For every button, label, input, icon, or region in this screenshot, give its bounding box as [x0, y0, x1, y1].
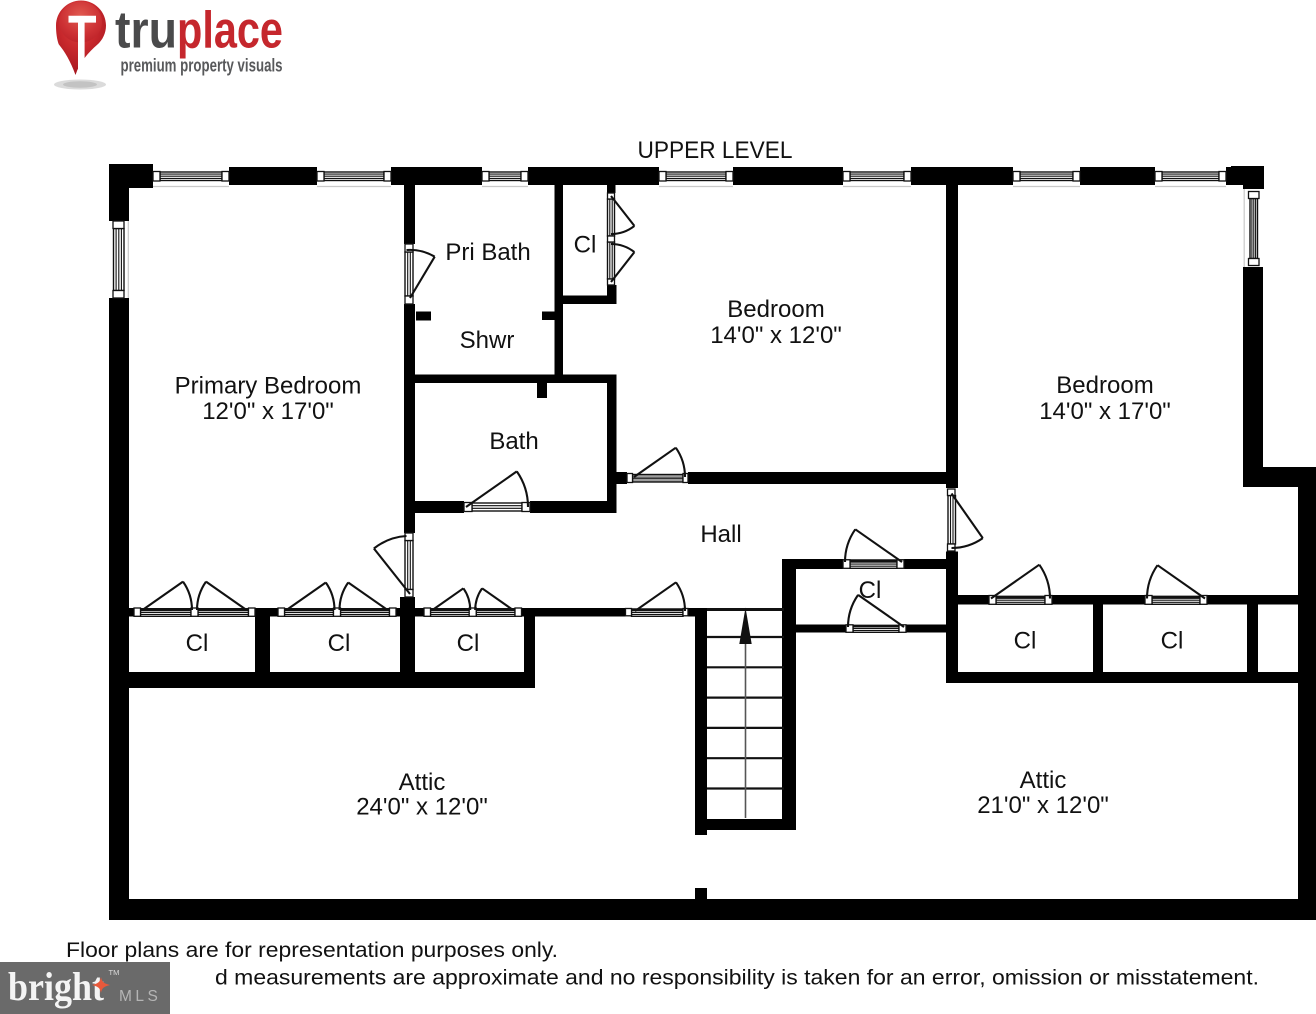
- svg-text:UPPER LEVEL: UPPER LEVEL: [638, 137, 793, 164]
- svg-text:Shwr: Shwr: [460, 327, 515, 354]
- svg-text:MLS: MLS: [119, 988, 161, 1005]
- svg-text:Bedroom: Bedroom: [727, 296, 824, 323]
- svg-text:Cl: Cl: [186, 630, 209, 657]
- svg-text:place: place: [177, 2, 283, 60]
- svg-text:Pri Bath: Pri Bath: [445, 239, 530, 266]
- svg-text:Primary Bedroom: Primary Bedroom: [175, 373, 362, 400]
- svg-text:tru: tru: [115, 2, 177, 60]
- svg-text:Cl: Cl: [457, 630, 480, 657]
- svg-text:Attic: Attic: [1020, 767, 1067, 794]
- svg-text:TM: TM: [109, 968, 120, 977]
- svg-text:Cl: Cl: [859, 577, 882, 604]
- svg-text:Hall: Hall: [700, 521, 741, 548]
- svg-text:d measurements are approximate: d measurements are approximate and no re…: [215, 967, 1259, 990]
- svg-text:24'0" x 12'0": 24'0" x 12'0": [356, 794, 488, 821]
- svg-text:Bedroom: Bedroom: [1056, 372, 1153, 399]
- svg-text:Cl: Cl: [574, 232, 597, 259]
- svg-text:Bath: Bath: [489, 428, 538, 455]
- svg-text:14'0" x 17'0": 14'0" x 17'0": [1039, 398, 1171, 425]
- svg-text:Floor plans are for representa: Floor plans are for representation purpo…: [66, 939, 558, 962]
- svg-text:12'0" x 17'0": 12'0" x 17'0": [202, 398, 334, 425]
- svg-text:Cl: Cl: [328, 630, 351, 657]
- svg-text:21'0" x 12'0": 21'0" x 12'0": [977, 792, 1109, 819]
- svg-text:Cl: Cl: [1014, 628, 1037, 655]
- svg-text:bright: bright: [8, 964, 105, 1009]
- svg-text:Cl: Cl: [1161, 628, 1184, 655]
- svg-text:Attic: Attic: [399, 769, 446, 796]
- svg-text:premium property visuals: premium property visuals: [121, 56, 283, 76]
- svg-text:14'0" x 12'0": 14'0" x 12'0": [710, 322, 842, 349]
